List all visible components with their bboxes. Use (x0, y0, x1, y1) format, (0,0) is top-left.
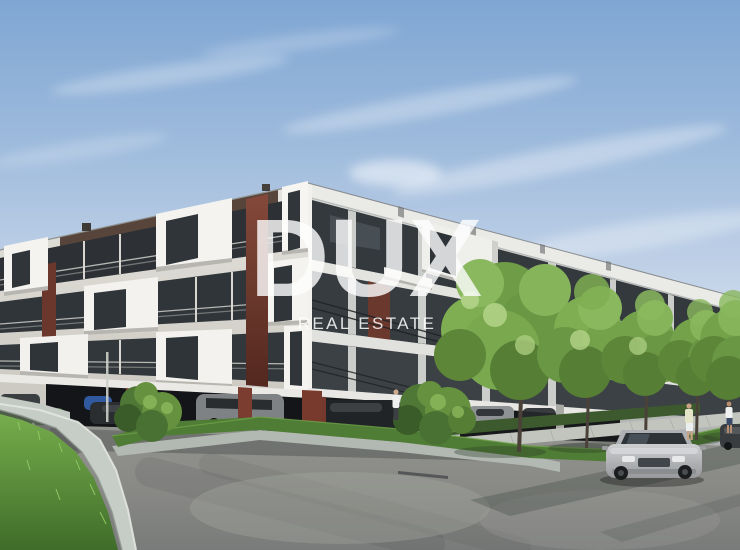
real-estate-listing-photo: DUX REAL ESTATE (0, 0, 740, 550)
roof-vent (262, 184, 270, 191)
watermark-subtitle: REAL ESTATE (298, 314, 437, 333)
lamp-pole (106, 352, 109, 422)
architectural-render: DUX REAL ESTATE (0, 0, 740, 550)
watermark-title: DUX (250, 197, 482, 320)
headlight (622, 456, 635, 462)
headlight (672, 456, 685, 462)
watermark: DUX REAL ESTATE (250, 197, 482, 333)
roof-vent (82, 223, 91, 231)
